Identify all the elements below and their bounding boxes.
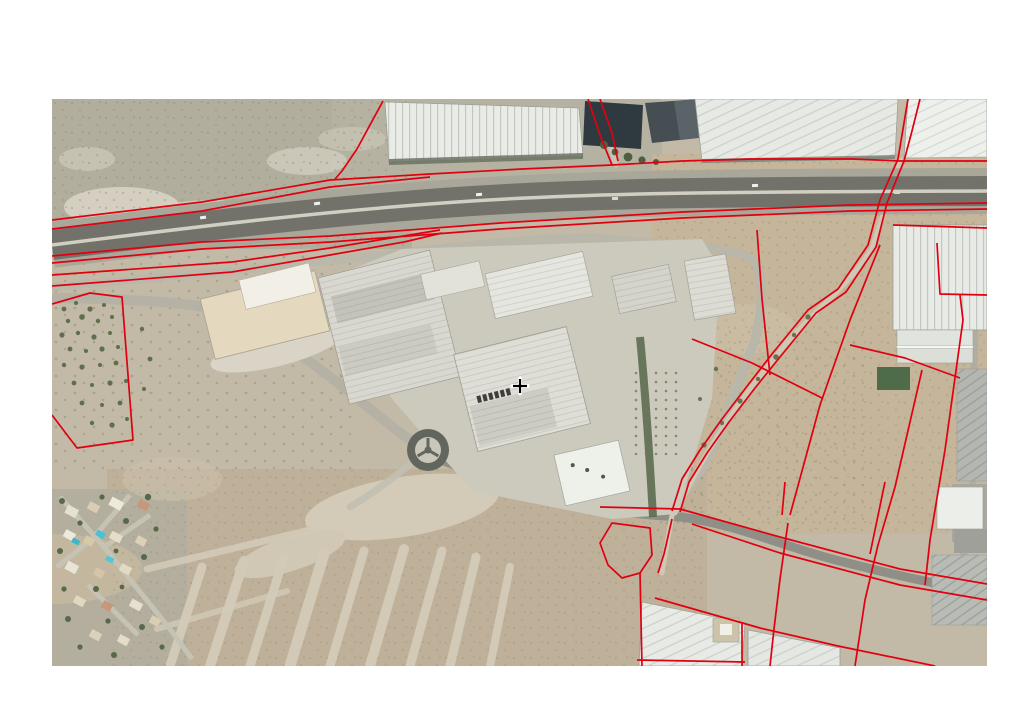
aerial-map[interactable] (52, 99, 987, 666)
industrial-bottom-right (932, 487, 987, 625)
green-field (877, 367, 910, 390)
orchard-east (630, 369, 684, 455)
aerial-map-image (52, 99, 987, 666)
roundabout (407, 429, 449, 471)
irrigation-pond (583, 101, 643, 149)
greenhouse-top-center (385, 102, 583, 162)
greenhouse-top-right (695, 99, 987, 161)
